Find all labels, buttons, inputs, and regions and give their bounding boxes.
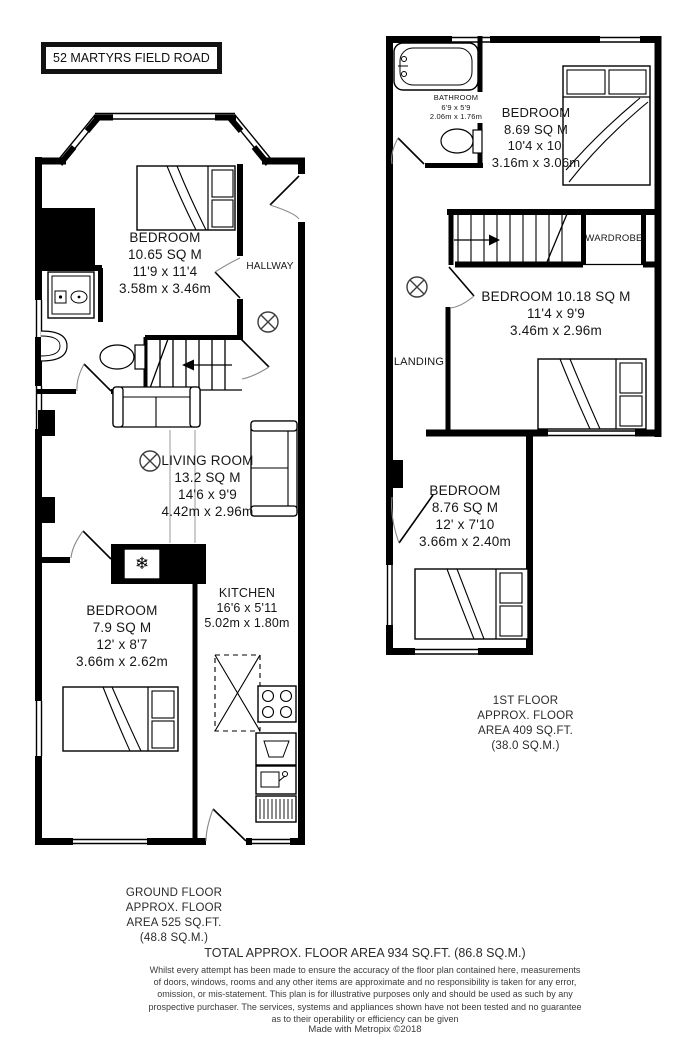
property-title: 52 MARTYRS FIELD ROAD xyxy=(41,42,222,74)
room-label-gf-bedroom-rear: BEDROOM 7.9 SQ M 12' x 8'7 3.66m x 2.62m xyxy=(42,602,202,670)
ff-stairs xyxy=(454,214,567,262)
first-floor-summary: 1ST FLOOR APPROX. FLOOR AREA 409 SQ.FT. … xyxy=(438,694,613,754)
room-name: HALLWAY xyxy=(238,261,302,273)
disclaimer: Whilst every attempt has been made to en… xyxy=(45,964,685,1025)
ff-bath xyxy=(394,43,478,90)
room-dims-metric: 3.46m x 2.96m xyxy=(460,322,652,339)
gf-worktop-basin xyxy=(256,733,296,765)
disclaimer-line: Whilst every attempt has been made to en… xyxy=(45,964,685,976)
ff-bed-middle xyxy=(538,359,646,429)
room-name: BEDROOM xyxy=(75,229,255,246)
summary-line: APPROX. FLOOR xyxy=(438,709,613,724)
gf-bed-front xyxy=(137,166,235,230)
gf-washer xyxy=(256,796,296,822)
room-name: LANDING xyxy=(388,356,450,368)
summary-line: AREA 409 SQ.FT. xyxy=(438,724,613,739)
summary-line: GROUND FLOOR xyxy=(84,886,264,901)
gf-toilet xyxy=(100,345,145,369)
gf-basin xyxy=(41,331,67,361)
gf-sofa-main xyxy=(113,387,200,427)
room-dims-metric: 3.58m x 3.46m xyxy=(75,280,255,297)
room-name: KITCHEN xyxy=(177,586,317,601)
room-dims-metric: 4.42m x 2.96m xyxy=(125,503,290,520)
room-dims-imperial: 10'4 x 10' xyxy=(455,138,617,155)
room-area: 8.69 SQ M xyxy=(455,122,617,139)
summary-line: APPROX. FLOOR xyxy=(84,901,264,916)
snowflake-icon: ❄ xyxy=(123,548,161,580)
room-area: 7.9 SQ M xyxy=(42,619,202,636)
ceiling-light-icon xyxy=(407,277,427,297)
summary-line: (38.0 SQ.M.) xyxy=(438,739,613,754)
room-dims-metric: 3.66m x 2.40m xyxy=(386,533,544,550)
summary-line: AREA 525 SQ.FT. xyxy=(84,916,264,931)
ground-floor-summary: GROUND FLOOR APPROX. FLOOR AREA 525 SQ.F… xyxy=(84,886,264,946)
room-label-gf-hallway: HALLWAY xyxy=(238,261,302,273)
room-area: 8.76 SQ M xyxy=(386,499,544,516)
room-label-ff-bathroom: BATHROOM 6'9 x 5'9 2.06m x 1.76m xyxy=(412,92,500,123)
room-dims-imperial: 12' x 8'7 xyxy=(42,636,202,653)
room-name: BATHROOM xyxy=(412,93,500,103)
gf-appliance-space xyxy=(215,655,260,731)
total-area: TOTAL APPROX. FLOOR AREA 934 SQ.FT. (86.… xyxy=(60,946,670,960)
gf-bed-rear xyxy=(63,687,178,751)
gf-stairs xyxy=(146,339,242,390)
room-dims-metric: 2.06m x 1.76m xyxy=(412,112,500,122)
disclaimer-line: of doors, windows, rooms and any other i… xyxy=(45,976,685,988)
summary-line: (48.8 SQ.M.) xyxy=(84,931,264,946)
room-dims-imperial: 14'6 x 9'9 xyxy=(125,486,290,503)
ff-bed-bottom xyxy=(415,569,528,639)
room-name: BEDROOM xyxy=(42,602,202,619)
room-name: BEDROOM 10.18 SQ M xyxy=(460,288,652,305)
room-area: 13.2 SQ M xyxy=(125,469,290,486)
gf-hob xyxy=(258,686,296,722)
room-label-ff-landing: LANDING xyxy=(388,356,450,368)
room-label-gf-living-room: LIVING ROOM 13.2 SQ M 14'6 x 9'9 4.42m x… xyxy=(125,452,290,520)
room-label-ff-bedroom-middle: BEDROOM 10.18 SQ M 11'4 x 9'9 3.46m x 2.… xyxy=(460,288,652,339)
room-label-ff-wardrobe: WARDROBE xyxy=(585,233,643,244)
credit-line: Made with Metropix ©2018 xyxy=(45,1024,685,1035)
room-area: 10.65 SQ M xyxy=(75,246,255,263)
summary-line: 1ST FLOOR xyxy=(438,694,613,709)
room-dims-metric: 3.16m x 3.06m xyxy=(455,155,617,172)
room-name: BEDROOM xyxy=(386,482,544,499)
gf-sink-unit xyxy=(256,766,296,794)
disclaimer-line: prospective purchaser. The services, sys… xyxy=(45,1001,685,1013)
room-label-ff-bedroom-bottom: BEDROOM 8.76 SQ M 12' x 7'10 3.66m x 2.4… xyxy=(386,482,544,550)
room-dims-metric: 3.66m x 2.62m xyxy=(42,653,202,670)
room-name: LIVING ROOM xyxy=(125,452,290,469)
room-dims-imperial: 12' x 7'10 xyxy=(386,516,544,533)
room-name: WARDROBE xyxy=(585,233,643,244)
ceiling-light-icon xyxy=(258,312,278,332)
room-dims-imperial: 11'9 x 11'4 xyxy=(75,263,255,280)
floorplan-page: 52 MARTYRS FIELD ROAD ❄ BEDROOM 10.65 SQ… xyxy=(0,0,700,1040)
disclaimer-line: omission, or mis-statement. This plan is… xyxy=(45,988,685,1000)
room-dims-imperial: 6'9 x 5'9 xyxy=(412,103,500,113)
room-label-gf-bedroom-front: BEDROOM 10.65 SQ M 11'9 x 11'4 3.58m x 3… xyxy=(75,229,255,297)
room-dims-imperial: 11'4 x 9'9 xyxy=(460,305,652,322)
